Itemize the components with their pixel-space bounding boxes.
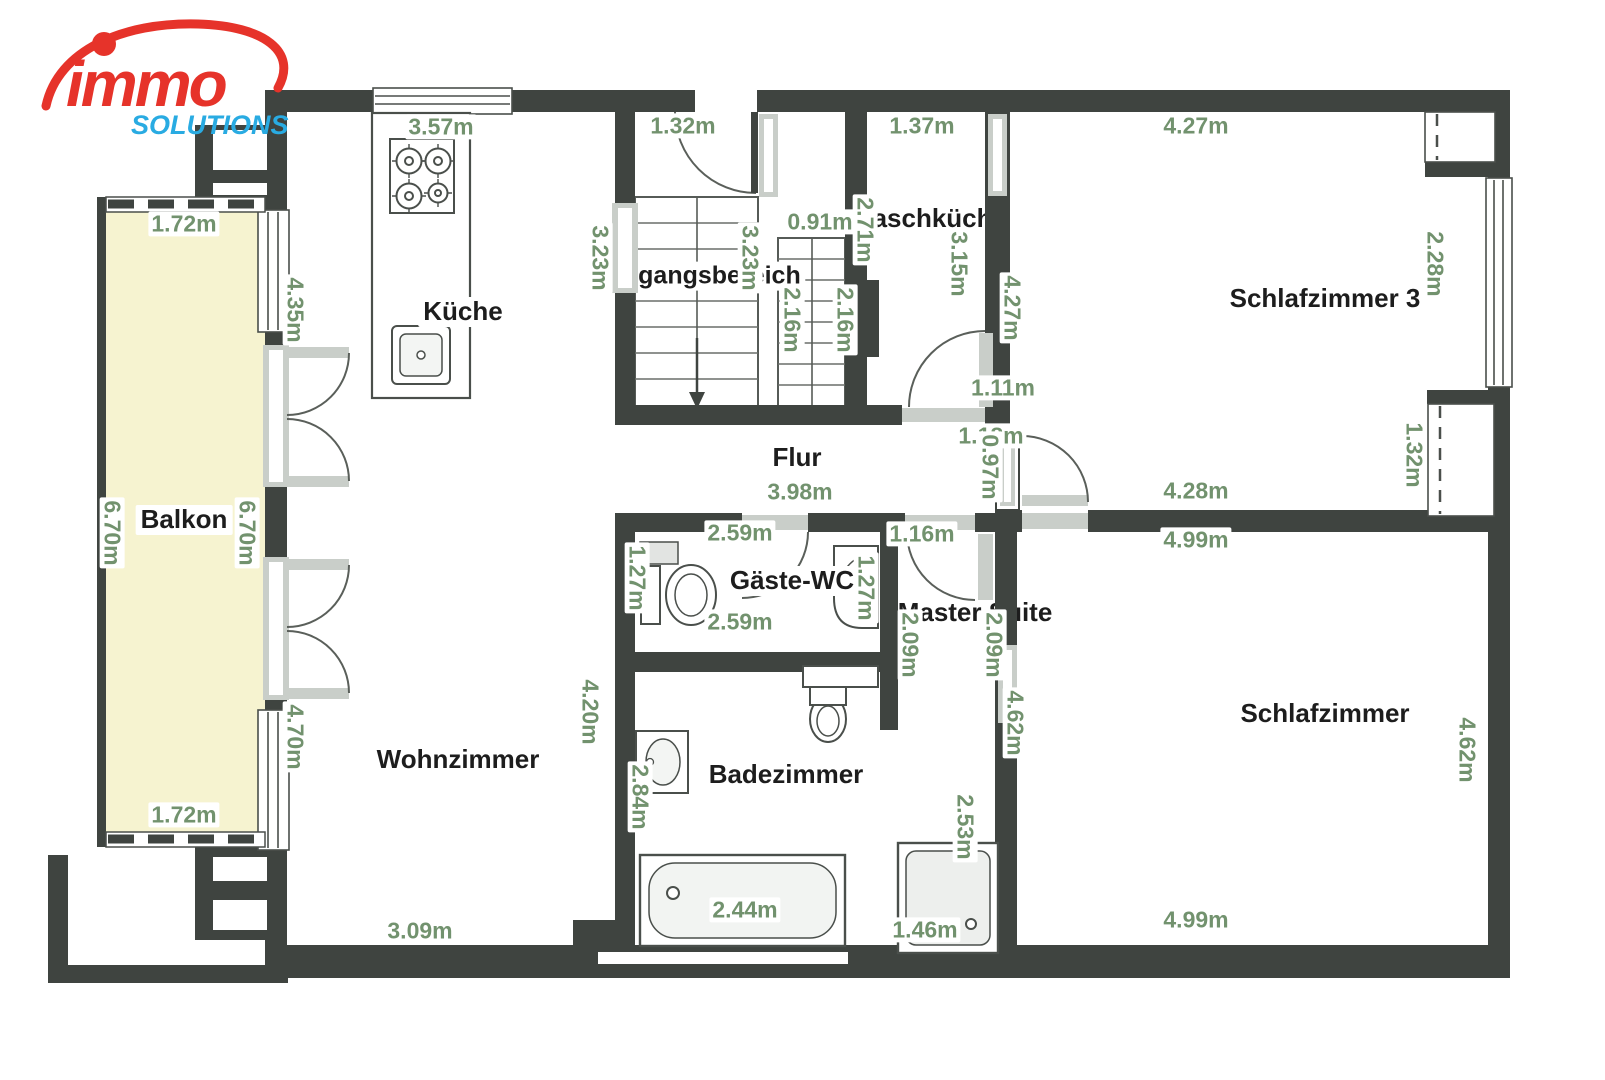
dimension-label: 1.72m [148,211,219,236]
dimension-label: 0.97m [977,431,1002,502]
dimension-label: 1.11m [968,375,1038,400]
dimension-label: 3.23m [587,222,612,293]
dimension-label: 4.28m [1160,478,1231,503]
floor-plan: Eingangsbereich Waschküche Master Suite [0,0,1605,1080]
dimension-label: 3.57m [405,114,476,139]
dimension-label: 4.70m [282,701,307,772]
dimension-label: 2.28m [1422,228,1447,299]
logo-tagline: SOLUTIONS [131,110,289,140]
dimension-label: 4.20m [577,676,602,747]
dimension-label: 3.15m [946,228,971,299]
dimension-label: 1.16m [886,521,957,546]
dimension-label: 1.32m [647,113,718,138]
dimension-label: 2.84m [627,761,652,832]
room-label-kueche: Küche [418,297,507,327]
dimension-label: 1.32m [1401,419,1426,490]
dimension-label: 4.35m [282,274,307,345]
dimension-label: 1.37m [886,113,957,138]
dimension-label: 6.70m [99,497,124,568]
dimension-label: 4.27m [999,272,1024,343]
dimension-label: 2.16m [832,284,857,355]
logo: immo SOLUTIONS [28,8,328,148]
dimension-label: 2.53m [952,791,977,862]
dimension-label: 1.46m [889,917,960,942]
dimension-label: 2.09m [897,609,922,680]
dimension-label: 1.72m [148,802,219,827]
dimension-label: 2.44m [709,897,780,922]
room-label-gaeste-wc: Gäste-WC [725,566,859,596]
dimension-label: 1.27m [624,542,649,613]
room-label-wohnzimmer: Wohnzimmer [372,745,545,775]
dimension-label: 2.71m [852,194,877,265]
room-label-schlafzimmer: Schlafzimmer [1235,699,1414,729]
room-label-balkon: Balkon [136,505,233,535]
dimension-label: 2.09m [981,609,1006,680]
dimension-label: 3.09m [384,918,455,943]
dimension-label: 4.27m [1160,113,1231,138]
room-label-flur: Flur [767,443,826,473]
dimension-label: 4.99m [1160,907,1231,932]
dimension-label: 6.70m [234,497,259,568]
dimension-label: 4.62m [1454,714,1479,785]
labels: Küche Balkon Schlafzimmer 3 Flur Gäste-W… [0,0,1605,1080]
room-label-schlafzimmer-3: Schlafzimmer 3 [1225,284,1426,314]
dimension-label: 3.23m [737,222,762,293]
dimension-label: 0.91m [784,209,855,234]
dimension-label: 4.99m [1160,527,1231,552]
dimension-label: 1.27m [853,552,878,623]
room-label-badezimmer: Badezimmer [704,760,869,790]
dimension-label: 2.59m [704,609,775,634]
dimension-label: 4.62m [1002,687,1027,758]
dimension-label: 2.16m [779,284,804,355]
dimension-label: 3.98m [764,479,835,504]
dimension-label: 2.59m [704,520,775,545]
